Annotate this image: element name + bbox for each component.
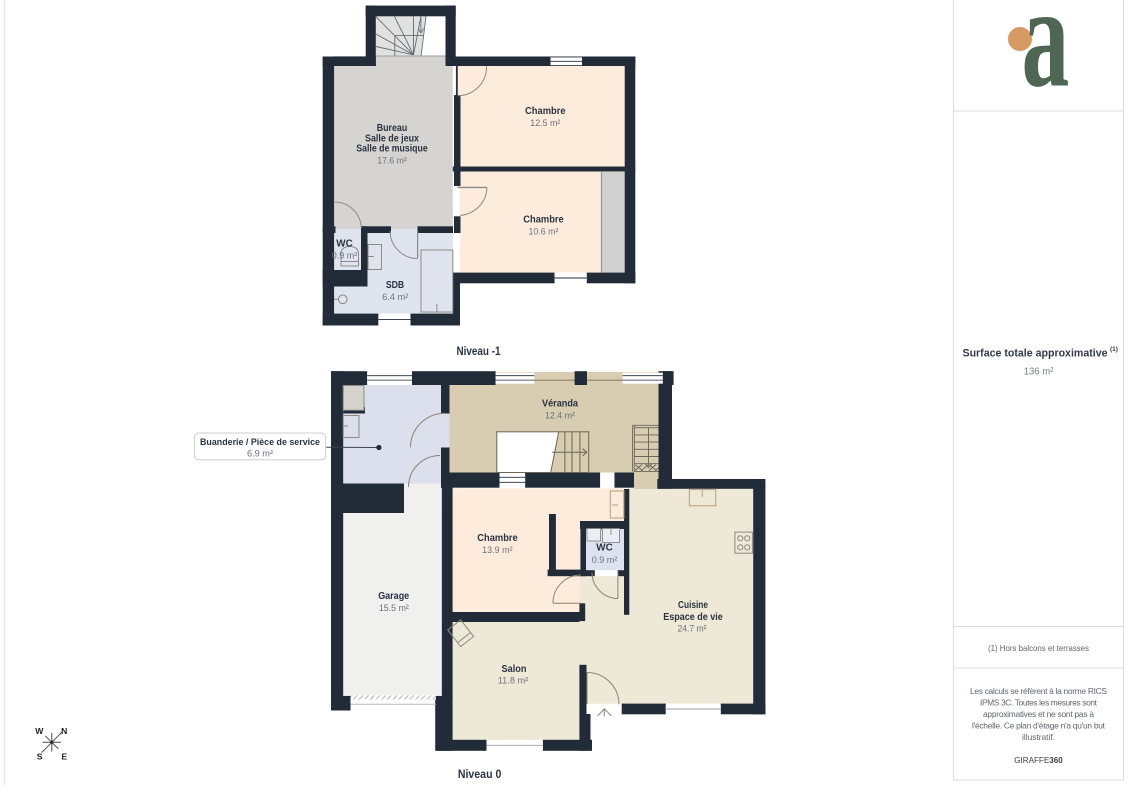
svg-text:Niveau 0: Niveau 0 xyxy=(458,767,502,781)
svg-text:17.6 m²: 17.6 m² xyxy=(377,156,407,166)
svg-text:SDB: SDB xyxy=(386,280,404,291)
svg-text:6.9 m²: 6.9 m² xyxy=(247,449,273,459)
svg-text:15.5 m²: 15.5 m² xyxy=(379,603,409,613)
svg-text:W: W xyxy=(35,726,44,736)
svg-text:N: N xyxy=(61,726,67,736)
svg-text:Véranda: Véranda xyxy=(542,399,578,410)
svg-text:6.4 m²: 6.4 m² xyxy=(382,292,408,302)
svg-text:136 m²: 136 m² xyxy=(1024,367,1054,378)
svg-text:Les calculs se réfèrent à la n: Les calculs se réfèrent à la norme RICS xyxy=(970,686,1107,696)
svg-text:10.6 m²: 10.6 m² xyxy=(529,227,559,237)
svg-text:Buanderie / Pièce de service: Buanderie / Pièce de service xyxy=(200,437,320,448)
svg-text:approximatives et ne sont pas: approximatives et ne sont pas à xyxy=(983,709,1094,719)
svg-text:12.4 m²: 12.4 m² xyxy=(545,411,575,421)
svg-text:l'échelle. Ce plan d'étage n'a: l'échelle. Ce plan d'étage n'a qu'un but xyxy=(972,721,1106,731)
svg-text:WC: WC xyxy=(336,239,353,250)
svg-text:Niveau -1: Niveau -1 xyxy=(457,344,501,358)
svg-text:12.5 m²: 12.5 m² xyxy=(530,118,560,128)
svg-text:IPMS 3C. Toutes les mesures so: IPMS 3C. Toutes les mesures sont xyxy=(980,698,1098,708)
svg-text:S: S xyxy=(37,751,43,761)
svg-text:13.9 m²: 13.9 m² xyxy=(482,545,513,555)
svg-text:illustratif.: illustratif. xyxy=(1022,732,1055,742)
svg-text:Espace de vie: Espace de vie xyxy=(663,612,723,623)
svg-text:Cuisine: Cuisine xyxy=(678,600,708,611)
svg-text:Surface totale approximative: Surface totale approximative xyxy=(963,348,1108,360)
svg-text:Chambre: Chambre xyxy=(525,106,566,117)
svg-text:(1): (1) xyxy=(1110,346,1118,353)
svg-text:Chambre: Chambre xyxy=(523,215,564,226)
svg-text:Garage: Garage xyxy=(378,591,409,602)
svg-text:WC: WC xyxy=(596,543,613,554)
svg-text:24.7 m²: 24.7 m² xyxy=(677,624,706,634)
svg-text:GIRAFFE360: GIRAFFE360 xyxy=(1014,755,1063,765)
svg-text:(1) Hors balcons et terrasses: (1) Hors balcons et terrasses xyxy=(988,643,1089,653)
svg-text:a: a xyxy=(1022,0,1070,117)
svg-text:11.8 m²: 11.8 m² xyxy=(498,676,529,686)
svg-text:0.9 m²: 0.9 m² xyxy=(592,555,618,565)
svg-text:0.9 m²: 0.9 m² xyxy=(332,250,358,260)
svg-text:Chambre: Chambre xyxy=(477,533,518,544)
svg-text:Salon: Salon xyxy=(502,664,527,675)
svg-text:E: E xyxy=(61,751,67,761)
svg-text:Salle de musique: Salle de musique xyxy=(356,144,428,155)
